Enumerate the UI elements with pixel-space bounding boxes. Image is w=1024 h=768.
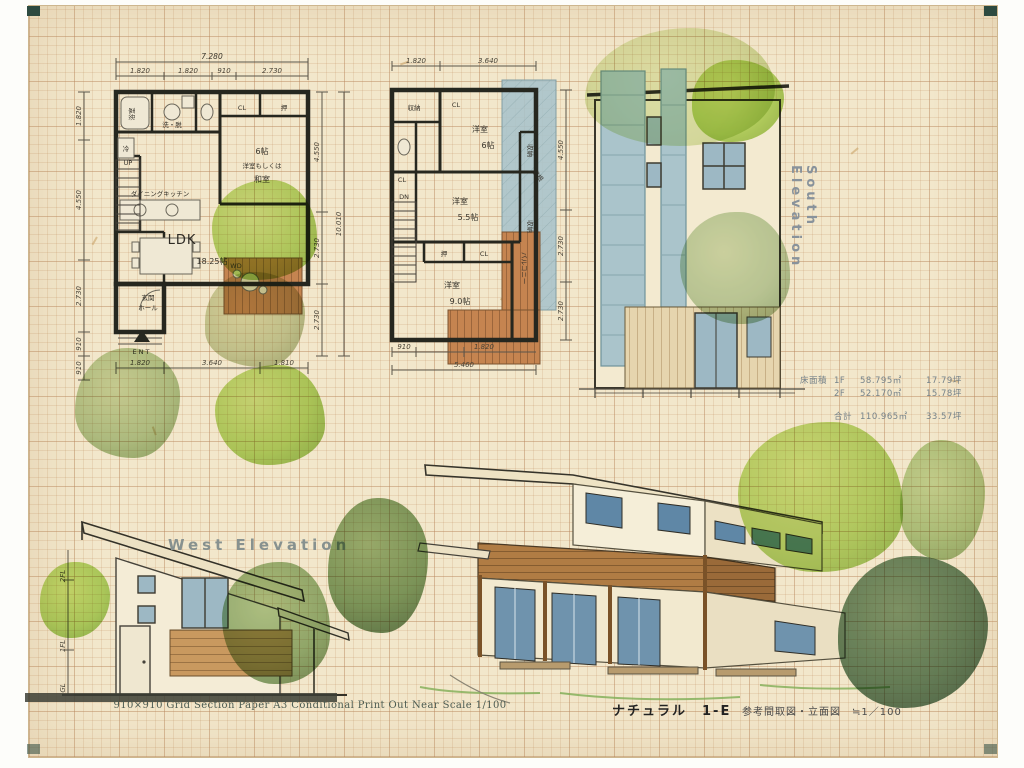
tree-plan1-right: [212, 180, 317, 280]
tree-west-right: [222, 562, 330, 684]
area-2f-tsubo: 15.78坪: [926, 388, 976, 401]
tree-perspective-left: [328, 498, 428, 633]
label-ldk: LDK: [168, 233, 197, 248]
dim-2f-top-0: 1.820: [406, 57, 427, 65]
level-gl: GL: [59, 683, 67, 692]
dim-2f-bottom-1: 1.820: [474, 343, 495, 351]
label-cl-2f-b: CL: [398, 176, 407, 184]
dim-1f-left-3: 910: [75, 337, 83, 351]
dim-1f-left-1: 4.550: [75, 189, 83, 210]
label-cl-2f-a: CL: [452, 101, 461, 109]
tree-plan1-bottom: [215, 365, 325, 465]
area-2f-floor: 2F: [834, 388, 860, 401]
label-room55-size: 5.5帖: [458, 212, 479, 222]
area-1f-tsubo: 17.79坪: [926, 375, 976, 388]
label-oshiire-2f: 押: [441, 249, 448, 258]
label-room9: 洋室: [444, 280, 460, 290]
path-stroke: [450, 675, 510, 703]
area-total-m2: 110.965㎡: [860, 411, 926, 424]
footer-drawing-caption: 参考間取図・立面図 ≒1／100: [742, 703, 902, 718]
area-row-2f: 2F 52.170㎡ 15.78坪: [800, 388, 976, 401]
corner-mark: [27, 6, 40, 16]
label-bath: 浴室: [127, 107, 136, 121]
label-room9-size: 9.0帖: [450, 296, 471, 306]
dim-2f-right-2: 2.730: [557, 300, 565, 321]
west-elevation-title: West Elevation: [168, 536, 350, 554]
dim-2f-right-1: 2.730: [557, 235, 565, 256]
toilet-2f: [398, 139, 410, 155]
dim-1f-left-4: 910: [75, 361, 83, 375]
label-room6-2f: 洋室: [472, 124, 488, 134]
dim-2f-right-0: 4.550: [557, 139, 565, 160]
label-dk: ダイニングキッチン: [131, 189, 190, 198]
footer-product-name: ナチュラル 1-E: [612, 700, 731, 719]
level-1fl: 1FL: [59, 640, 67, 652]
dim-1f-left-0: 1.820: [75, 105, 83, 126]
area-heading: 床面積: [800, 375, 834, 388]
door-handle: [142, 660, 145, 663]
dim-2f-bottom-total: 5.460: [454, 361, 475, 369]
label-entrance: 玄関: [142, 293, 155, 302]
label-balcony: バルコニー: [520, 252, 528, 284]
dim-1f-right-0: 4.550: [313, 141, 321, 162]
label-up: UP: [124, 159, 133, 167]
dim-1f-right-2: 2.730: [313, 309, 321, 330]
label-storage: 収納: [408, 103, 421, 112]
dim-2f-bottom-0: 910: [397, 343, 411, 351]
dim-1f-left-2: 2.730: [75, 285, 83, 306]
right-window-1f: [775, 621, 815, 655]
label-cl-2f-c: CL: [480, 250, 489, 258]
entry-door: [120, 626, 150, 695]
dim-1f-top-1: 1.820: [178, 67, 199, 75]
dim-1f-right-total: 10.010: [335, 211, 343, 236]
drawing-sheet-page: 7.280 1.820 1.820 910 2.730 1.820 3.640 …: [0, 0, 1024, 768]
label-fridge: 冷: [123, 144, 130, 153]
south-elevation-title: South Elevation: [788, 165, 818, 335]
corner-mark: [984, 6, 997, 16]
area-total-tsubo: 33.57坪: [926, 411, 976, 424]
area-1f-floor: 1F: [834, 375, 860, 388]
floor-area-table: 床面積 1F 58.795㎡ 17.79坪 2F 52.170㎡ 15.78坪 …: [800, 375, 976, 424]
dim-1f-bottom-1: 3.640: [202, 359, 223, 367]
label-dn: DN: [399, 193, 409, 201]
label-room6-2f-size: 6帖: [481, 140, 494, 150]
label-oshiire-1f: 押: [281, 103, 288, 112]
label-room6-l1: 洋室もしくは: [243, 161, 283, 170]
tree-perspective-right: [738, 422, 903, 572]
label-storage-r2: 収納: [526, 220, 535, 233]
corner-mark: [984, 744, 997, 754]
corner-mark: [27, 744, 40, 754]
dim-1f-top-3: 2.730: [262, 67, 283, 75]
dim-2f-top-1: 3.640: [478, 57, 499, 65]
dim-1f-top-total: 7.280: [201, 52, 223, 61]
label-storage-r1: 収納: [526, 144, 535, 157]
south-dim-ticks: [579, 388, 805, 398]
label-wash: 洗・脱: [162, 120, 182, 129]
label-room55: 洋室: [452, 196, 468, 206]
dim-1f-top-0: 1.820: [130, 67, 151, 75]
label-cl-1f: CL: [238, 104, 247, 112]
lower-glass-doors: [495, 587, 660, 666]
area-row-1f: 床面積 1F 58.795㎡ 17.79坪: [800, 375, 976, 388]
footer-paper-spec: 910×910 Grid Section Paper A3 Conditiona…: [95, 700, 525, 711]
area-1f-m2: 58.795㎡: [860, 375, 926, 388]
label-hall: ホール: [138, 304, 158, 312]
floor-plan-2f: 屋根 バルコニー: [352, 52, 592, 387]
label-room6-size: 6帖: [255, 146, 268, 156]
dim-1f-top-2: 910: [217, 67, 231, 75]
tree-plan1-lower: [205, 272, 305, 367]
area-2f-m2: 52.170㎡: [860, 388, 926, 401]
tree-left-of-plan1: [75, 348, 180, 458]
